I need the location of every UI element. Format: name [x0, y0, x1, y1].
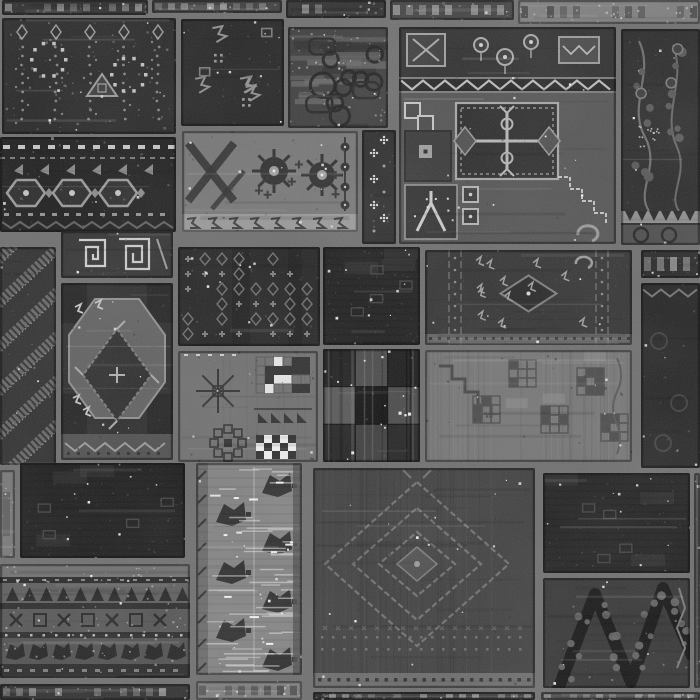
lighting-unevenness-overlay: [0, 0, 700, 700]
patchwork-rug-photo: [0, 0, 700, 700]
rug-canvas: [0, 0, 700, 700]
